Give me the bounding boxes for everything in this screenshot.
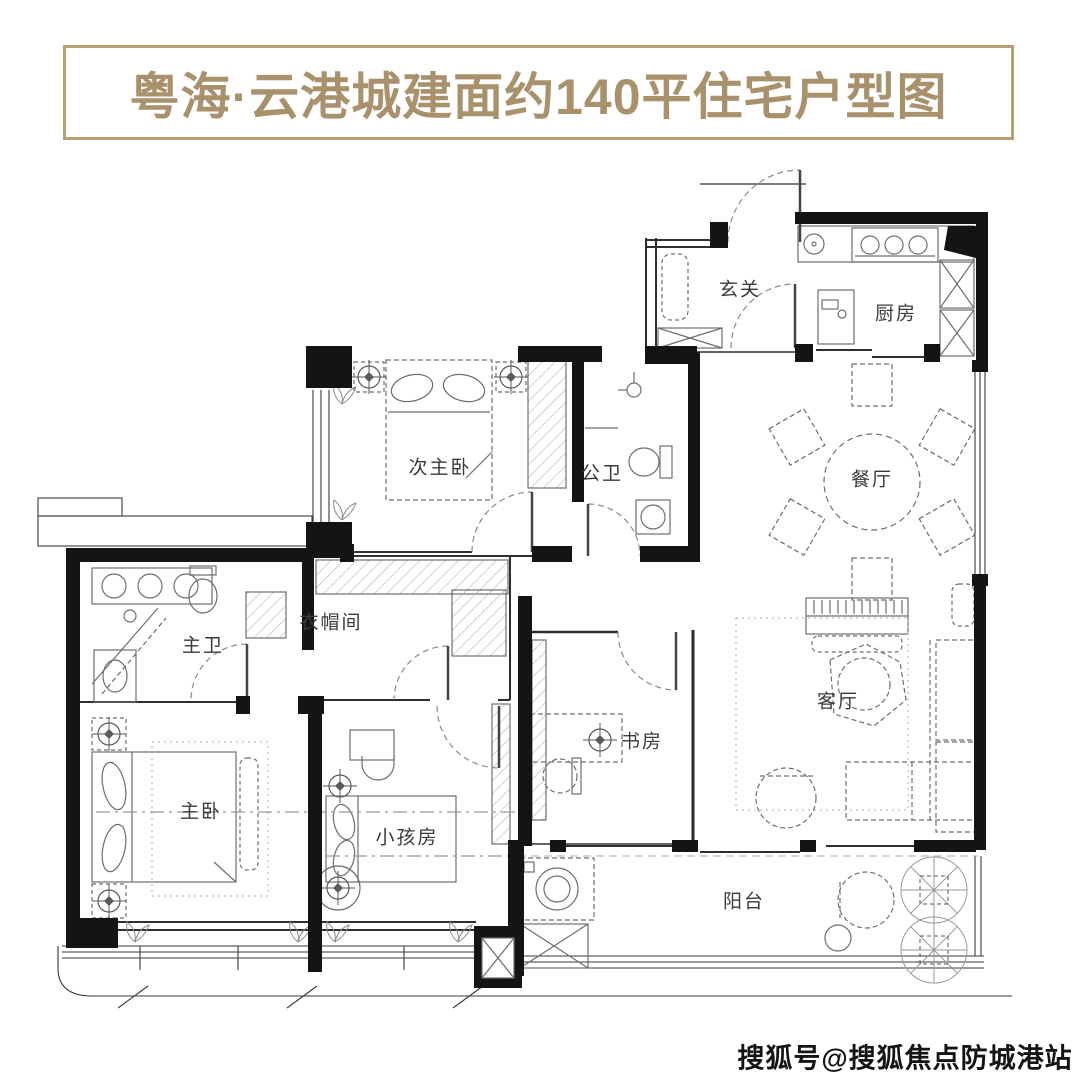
page-title: 粤海·云港城建面约140平住宅户型图 xyxy=(129,57,947,129)
watermark-text: 搜狐号@搜狐焦点防城港站 xyxy=(737,1037,1072,1076)
room-label-kids-room: 小孩房 xyxy=(375,823,438,850)
room-label-shared-bathroom: 公卫 xyxy=(581,459,623,486)
room-label-balcony: 阳台 xyxy=(723,887,765,914)
floorplan-page: 粤海·云港城建面约140平住宅户型图 玄关 厨房 次主卧 公卫 餐厅 主卫 衣帽… xyxy=(0,0,1080,1083)
room-label-dining-room: 餐厅 xyxy=(851,465,893,492)
room-label-walk-in-closet: 衣帽间 xyxy=(299,608,362,635)
room-label-study: 书房 xyxy=(621,727,663,754)
room-label-master-bathroom: 主卫 xyxy=(182,631,224,658)
room-label-living-room: 客厅 xyxy=(817,687,859,714)
title-banner: 粤海·云港城建面约140平住宅户型图 xyxy=(63,45,1014,140)
room-label-second-master-bedroom: 次主卧 xyxy=(408,453,471,480)
room-label-kitchen: 厨房 xyxy=(875,299,917,326)
room-label-master-bedroom: 主卧 xyxy=(180,797,222,824)
room-label-entry: 玄关 xyxy=(719,275,761,302)
floor-plan-drawing xyxy=(0,0,1080,1083)
